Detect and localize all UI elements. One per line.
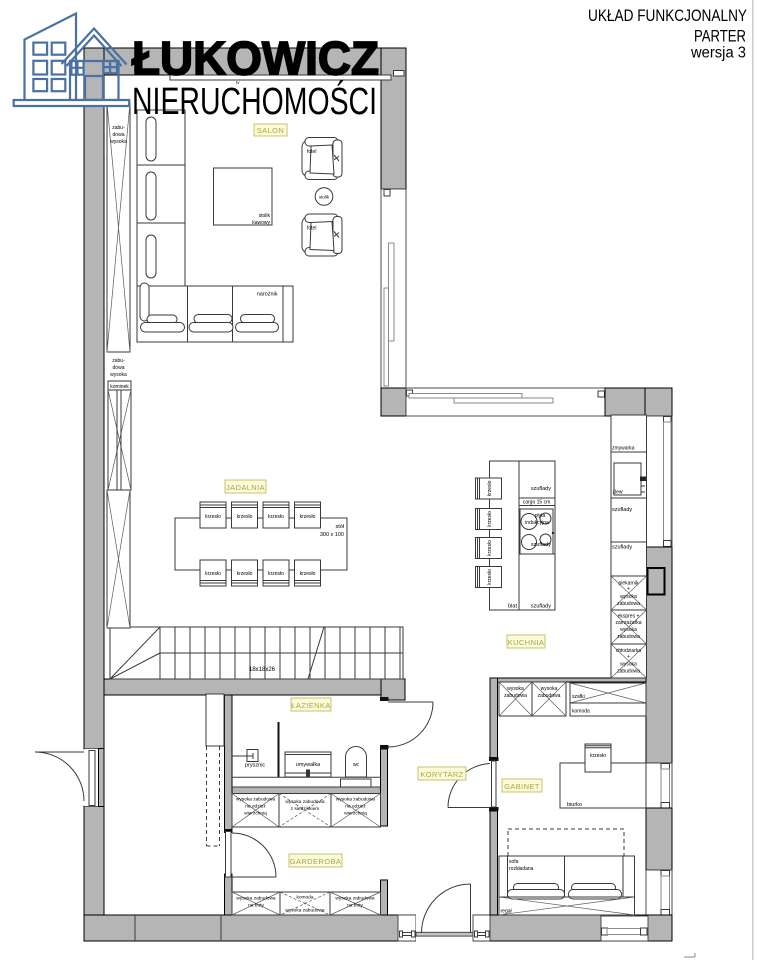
svg-text:wysoka zabudowa: wysoka zabudowa [285,799,325,805]
svg-text:umywalka: umywalka [296,762,321,768]
svg-text:zabudowa: zabudowa [617,634,640,640]
svg-text:cargo 15 cm: cargo 15 cm [523,500,551,506]
svg-text:wysoka zabudowa: wysoka zabudowa [236,896,276,902]
svg-text:300 x 100: 300 x 100 [320,532,344,538]
svg-text:wc: wc [353,762,360,768]
svg-text:wierzchnią: wierzchnią [344,811,367,817]
svg-text:KORYTARZ: KORYTARZ [420,770,463,779]
svg-text:krzesło: krzesło [237,571,253,577]
svg-text:zabudowa: zabudowa [538,693,561,699]
svg-text:regał: regał [501,909,513,915]
svg-text:rozkładana: rozkładana [509,866,534,872]
svg-text:szuflady: szuflady [531,604,551,610]
svg-text:szuflady: szuflady [531,542,551,548]
svg-text:wysoka zabudowa: wysoka zabudowa [285,908,325,914]
svg-text:18x18x26: 18x18x26 [249,667,276,673]
svg-text:wysoka zabudowa: wysoka zabudowa [236,797,276,803]
svg-text:krzesło: krzesło [487,480,493,496]
svg-text:ŁAZIENKA: ŁAZIENKA [291,701,330,710]
svg-text:wysoka: wysoka [620,627,637,633]
svg-text:wysoka: wysoka [620,594,637,600]
svg-text:zmywarka: zmywarka [612,446,635,452]
svg-text:+: + [304,902,307,907]
svg-text:krzesło: krzesło [268,571,284,577]
svg-text:krzesło: krzesło [487,511,493,527]
svg-text:zabudowa: zabudowa [617,669,640,675]
svg-text:na odzież: na odzież [245,804,266,810]
svg-text:z siedziskiem: z siedziskiem [291,806,320,812]
svg-text:GABINET: GABINET [504,782,540,791]
svg-text:dowa: dowa [113,132,125,138]
svg-text:prysznic: prysznic [245,763,265,769]
svg-text:zabudowa: zabudowa [504,693,527,699]
svg-text:wysoka: wysoka [620,662,637,668]
svg-text:fotel: fotel [307,149,316,155]
svg-text:UKŁAD FUNKCJONALNY: UKŁAD FUNKCJONALNY [588,7,747,25]
svg-text:wysoka: wysoka [110,372,127,378]
svg-text:zabu-: zabu- [112,358,125,364]
svg-text:KUCHNIA: KUCHNIA [508,638,545,647]
svg-text:wersja 3: wersja 3 [690,45,746,62]
svg-text:na odzież: na odzież [345,804,366,810]
svg-text:fotel: fotel [307,226,316,232]
svg-text:wysoka zabudowa: wysoka zabudowa [335,896,375,902]
svg-text:zabu-: zabu- [112,125,125,131]
svg-text:płyta: płyta [535,513,546,519]
svg-text:na buty: na buty [347,903,363,909]
svg-text:PARTER: PARTER [694,28,746,46]
svg-text:krzesło: krzesło [205,571,221,577]
svg-text:GARDEROBA: GARDEROBA [290,857,342,866]
svg-text:indukcyjna: indukcyjna [525,520,549,526]
svg-text:+: + [627,654,630,660]
svg-text:stolik: stolik [259,213,271,219]
svg-text:krzesło: krzesło [237,514,253,520]
svg-text:krzesło: krzesło [300,514,316,520]
svg-text:zabudowa: zabudowa [617,601,640,607]
svg-text:biurko: biurko [567,802,582,808]
svg-text:zlew: zlew [613,490,623,496]
svg-text:blat: blat [508,604,517,610]
svg-text:wierzchnią: wierzchnią [244,811,267,817]
svg-text:wysoka: wysoka [507,686,524,692]
svg-text:wysoka: wysoka [110,139,127,145]
svg-text:ekspres +: ekspres + [618,614,640,620]
svg-text:na buty: na buty [248,903,264,909]
svg-text:krzesło: krzesło [205,514,221,520]
svg-text:kominek: kominek [110,384,129,390]
svg-text:krzesło: krzesło [300,571,316,577]
svg-text:wysoka zabudowa: wysoka zabudowa [336,797,376,803]
svg-text:krzesło: krzesło [268,514,284,520]
svg-text:dowa: dowa [113,365,125,371]
svg-text:komoda: komoda [572,709,590,715]
svg-text:szuflady: szuflady [531,486,551,492]
svg-text:komoda: komoda [296,895,313,901]
svg-text:stół: stół [335,524,344,530]
svg-text:krzesło: krzesło [590,753,606,759]
svg-text:sofa: sofa [509,859,519,865]
svg-text:stolik: stolik [319,195,330,200]
svg-text:SALON: SALON [257,126,284,135]
svg-text:+: + [627,587,630,593]
svg-text:kawowy: kawowy [252,220,270,226]
svg-text:zamrażarka: zamrażarka [615,620,641,626]
svg-text:narożnik: narożnik [257,292,278,298]
svg-text:JADALNIA: JADALNIA [226,483,265,492]
svg-text:szuflady: szuflady [612,507,632,513]
svg-text:krzesło: krzesło [487,540,493,556]
svg-text:szuflady: szuflady [612,545,632,551]
svg-text:krzesło: krzesło [487,569,493,585]
svg-text:szafki: szafki [572,694,585,700]
svg-text:NIERUCHOMOŚCI: NIERUCHOMOŚCI [132,78,377,123]
svg-text:wysoka: wysoka [541,686,558,692]
svg-text:ŁUKOWICZ: ŁUKOWICZ [132,32,379,85]
